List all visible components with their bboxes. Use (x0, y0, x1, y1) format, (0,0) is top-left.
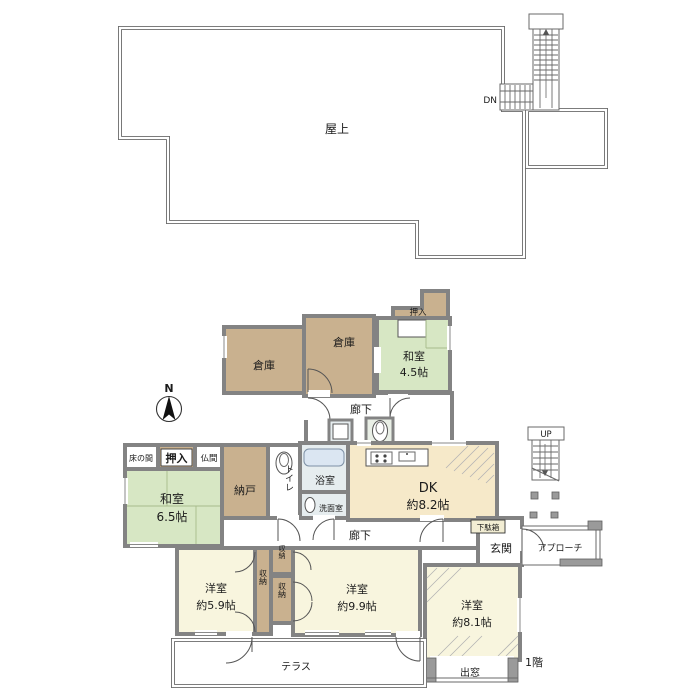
utility-sink-icon (333, 424, 348, 439)
roof-penthouse (527, 110, 606, 167)
getabako-label: 下駄箱 (477, 522, 500, 532)
kitchen-counter-icon (366, 449, 428, 466)
bathtub-icon (304, 449, 344, 466)
first-floor-section: 床の間 押入 仏間 和室 6.5帖 納戸 トイレ 浴室 洗面室 DK 約8.2帖… (122, 427, 602, 686)
up-label: UP (540, 430, 551, 440)
approach-wall-cap-top (588, 521, 602, 530)
west81-name-label: 洋室 (461, 598, 483, 612)
floor1-label: 1階 (525, 655, 543, 669)
west99-size-label: 約9.9帖 (337, 599, 377, 613)
washitsu65-name-label: 和室 (160, 491, 184, 506)
roof-stairs-icon (500, 14, 563, 110)
tokonoma-label: 床の間 (129, 453, 153, 463)
room-storage-tall (255, 548, 271, 634)
butsuma-label: 仏間 (200, 454, 217, 464)
warehouse-a-label: 倉庫 (253, 358, 275, 372)
storage-tall-label: 収納 (259, 568, 268, 586)
oshiire-label: 押入 (166, 451, 188, 465)
toilet2-icon (373, 421, 388, 442)
bath-label: 浴室 (315, 474, 335, 487)
roof-dn-label: DN (483, 96, 497, 106)
dk-name-label: DK (419, 481, 438, 496)
hallway-low-label: 廊下 (349, 528, 371, 542)
roof-section: 屋上 (120, 14, 606, 257)
oshiire-chip: 押入 (161, 449, 192, 466)
genkan-label: 玄関 (490, 541, 512, 555)
washroom-label: 洗面室 (319, 503, 343, 513)
terrace-label: テラス (281, 661, 311, 673)
middle-section: 倉庫 倉庫 和室 4.5帖 押入 廊下 (221, 291, 453, 444)
compass: N (157, 382, 182, 422)
dk-size-label: 約8.2帖 (406, 497, 449, 512)
warehouse-b-label: 倉庫 (333, 335, 355, 349)
washbasin-icon (305, 498, 315, 513)
storage-top-label: 収納 (278, 545, 286, 560)
hallway-mid-label: 廊下 (350, 402, 372, 416)
toilet-label: トイレ (283, 465, 294, 492)
washitsu45-size-label: 4.5帖 (400, 366, 429, 379)
nando-label: 納戸 (234, 484, 256, 497)
washitsu65-size-label: 6.5帖 (156, 509, 187, 524)
west59-size-label: 約5.9帖 (196, 598, 236, 612)
oshiire-mid-label: 押入 (409, 307, 427, 318)
roof-label: 屋上 (325, 122, 349, 136)
north-arrow-icon (163, 396, 176, 420)
room-washitsu-65 (125, 469, 222, 546)
porch-posts (530, 492, 559, 518)
room-warehouse-b (304, 316, 374, 396)
storage-mid-label: 収納 (278, 581, 287, 599)
washitsu45-name-label: 和室 (403, 349, 425, 363)
room-nando (222, 445, 268, 518)
approach-label: アプローチ (537, 543, 582, 554)
west81-size-label: 約8.1帖 (452, 615, 492, 629)
west59-name-label: 洋室 (205, 581, 227, 595)
floor-plan-canvas: 屋上 (0, 0, 700, 700)
approach-wall-cap-bottom (560, 559, 602, 566)
bay-window-label: 出窓 (460, 666, 480, 679)
compass-n-label: N (164, 382, 173, 395)
west99-name-label: 洋室 (346, 582, 368, 596)
